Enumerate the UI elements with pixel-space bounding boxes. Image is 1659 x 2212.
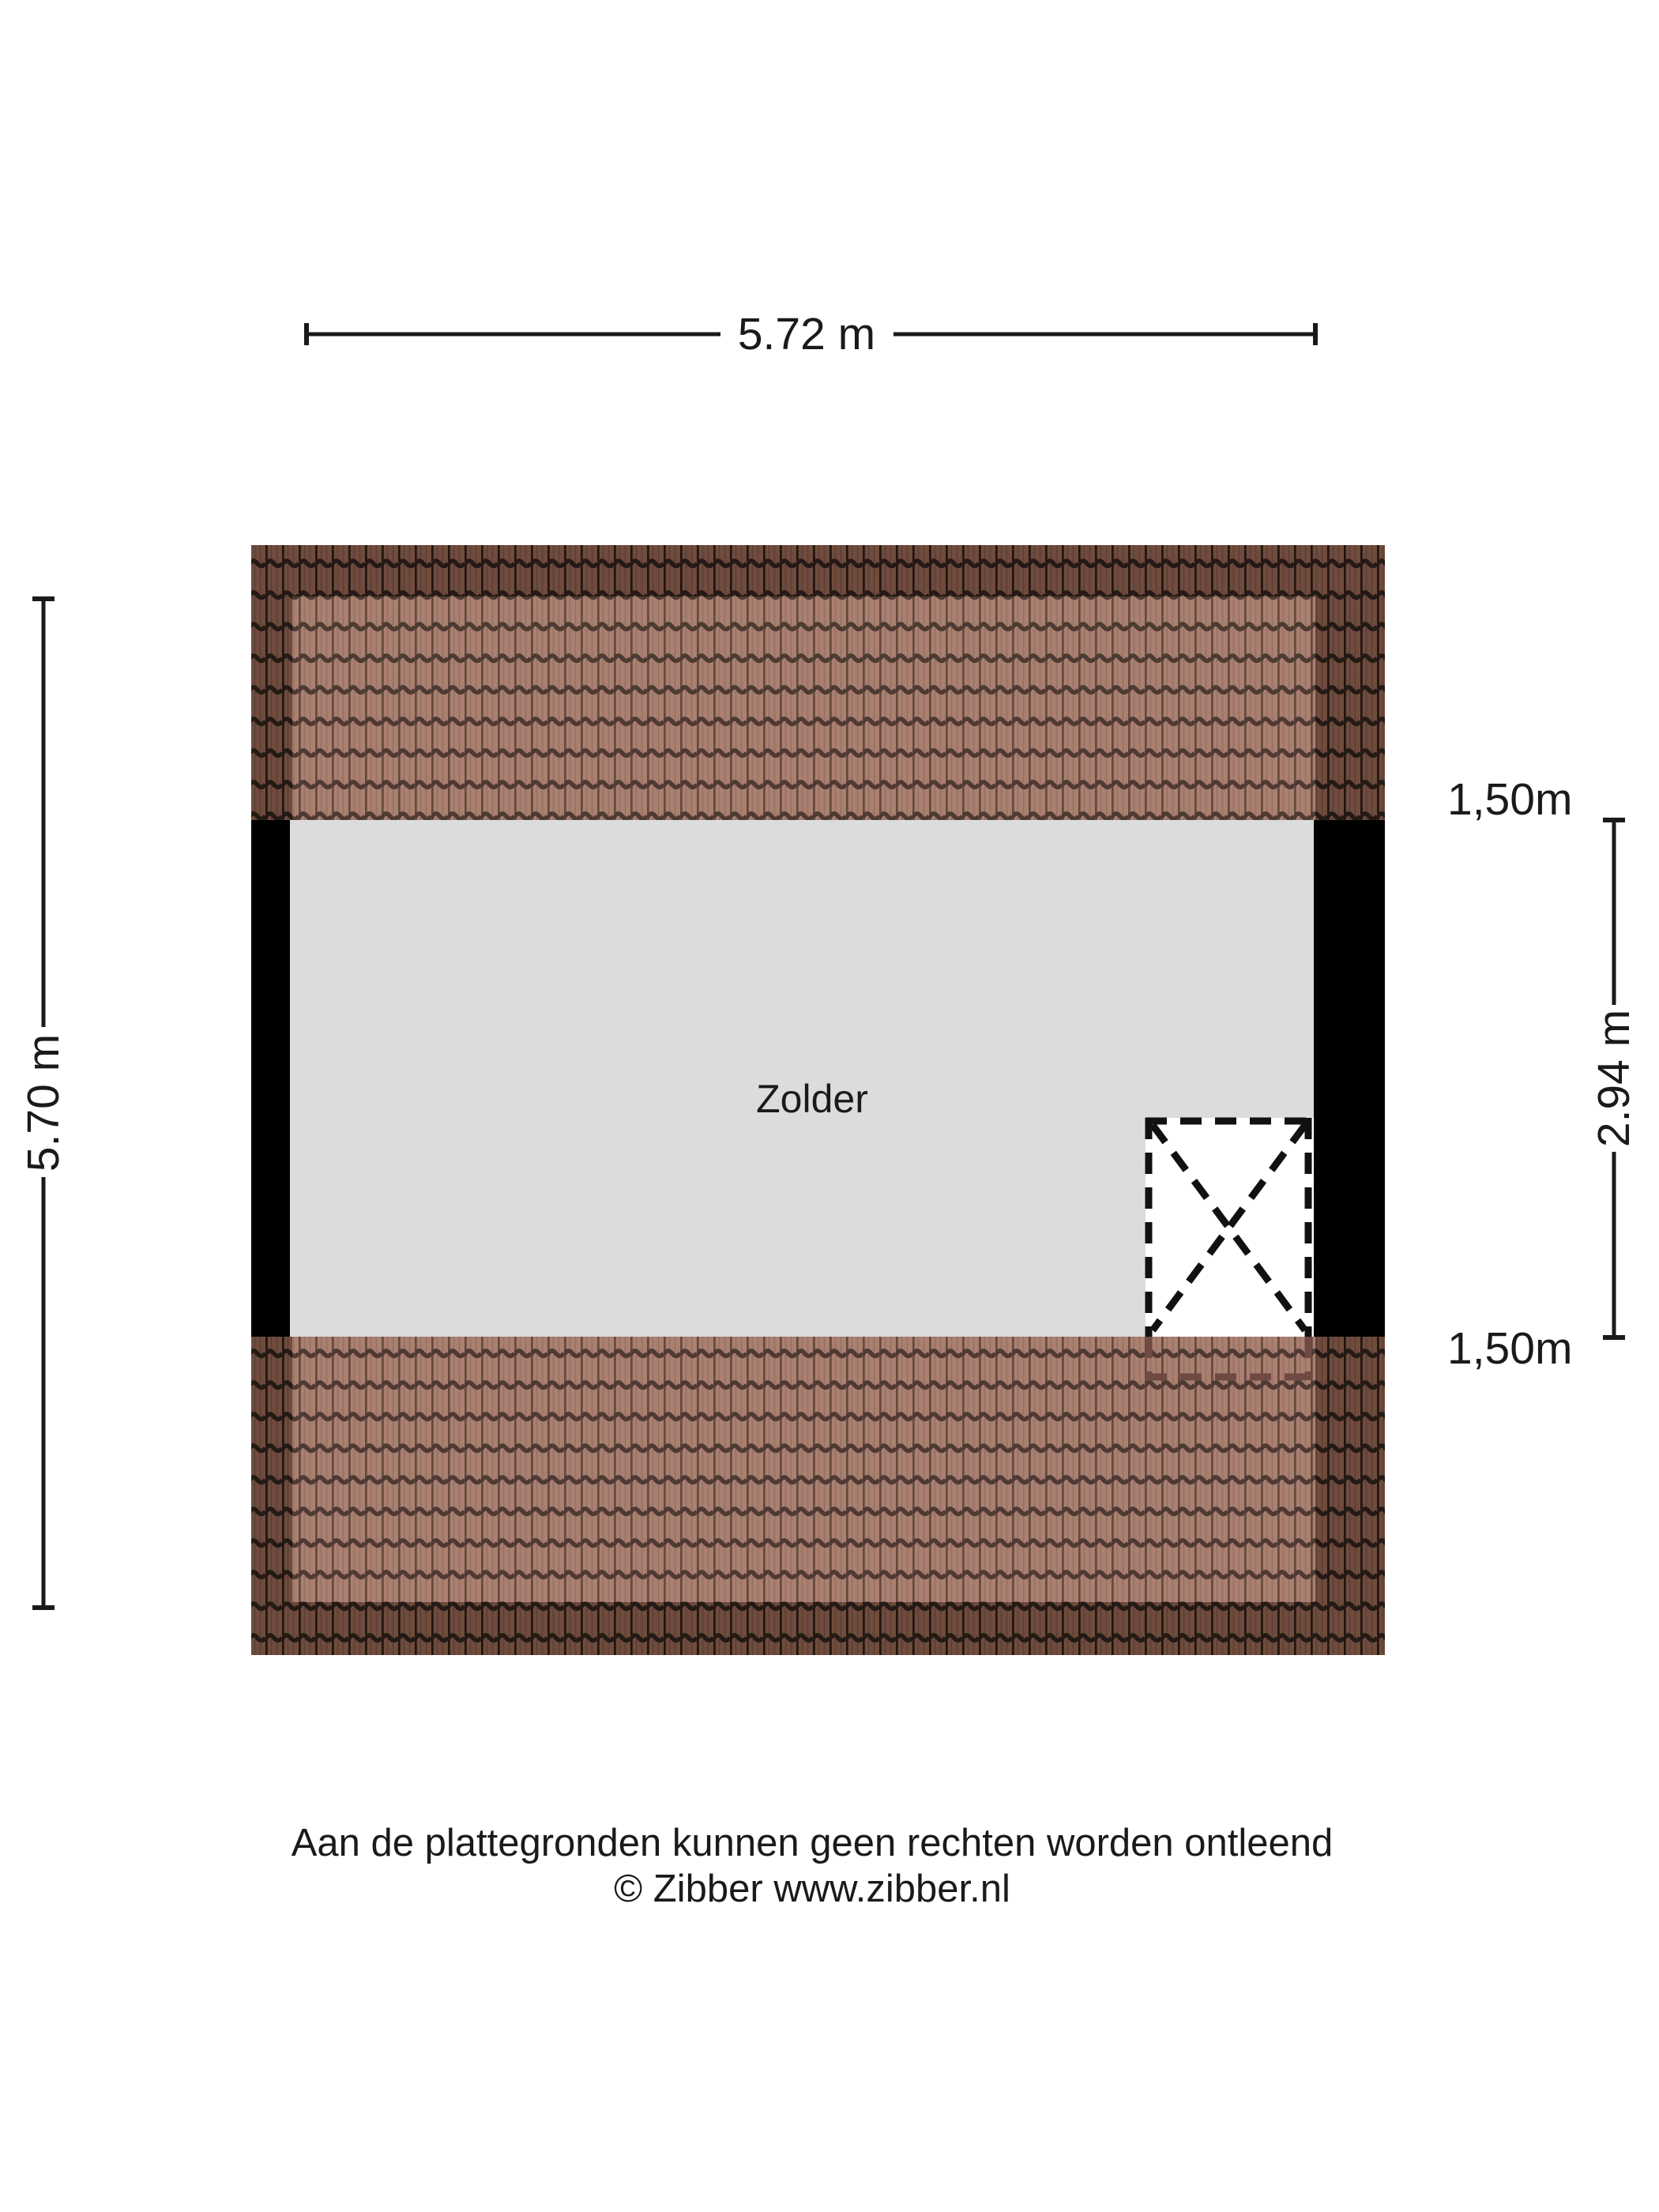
top-roof-highlight	[292, 596, 1315, 820]
dimension-left-label: 5.70 m	[18, 1034, 69, 1172]
floor-plan-svg: Zolder 5.72 m 5.70 m 2.94 m 1,50m 1,50m …	[0, 0, 1659, 2212]
floor-plan-page: Zolder 5.72 m 5.70 m 2.94 m 1,50m 1,50m …	[0, 0, 1659, 2212]
footer-copyright: © Zibber www.zibber.nl	[614, 1868, 1010, 1910]
dimension-right-label: 2.94 m	[1589, 1010, 1639, 1147]
headroom-bottom-label: 1,50m	[1447, 1323, 1572, 1374]
right-wall	[1314, 820, 1385, 1337]
headroom-top-label: 1,50m	[1447, 774, 1572, 825]
left-wall	[251, 820, 290, 1337]
dimension-top-label: 5.72 m	[738, 309, 875, 359]
footer-disclaimer: Aan de plattegronden kunnen geen rechten…	[292, 1822, 1334, 1864]
room-label: Zolder	[756, 1077, 868, 1121]
